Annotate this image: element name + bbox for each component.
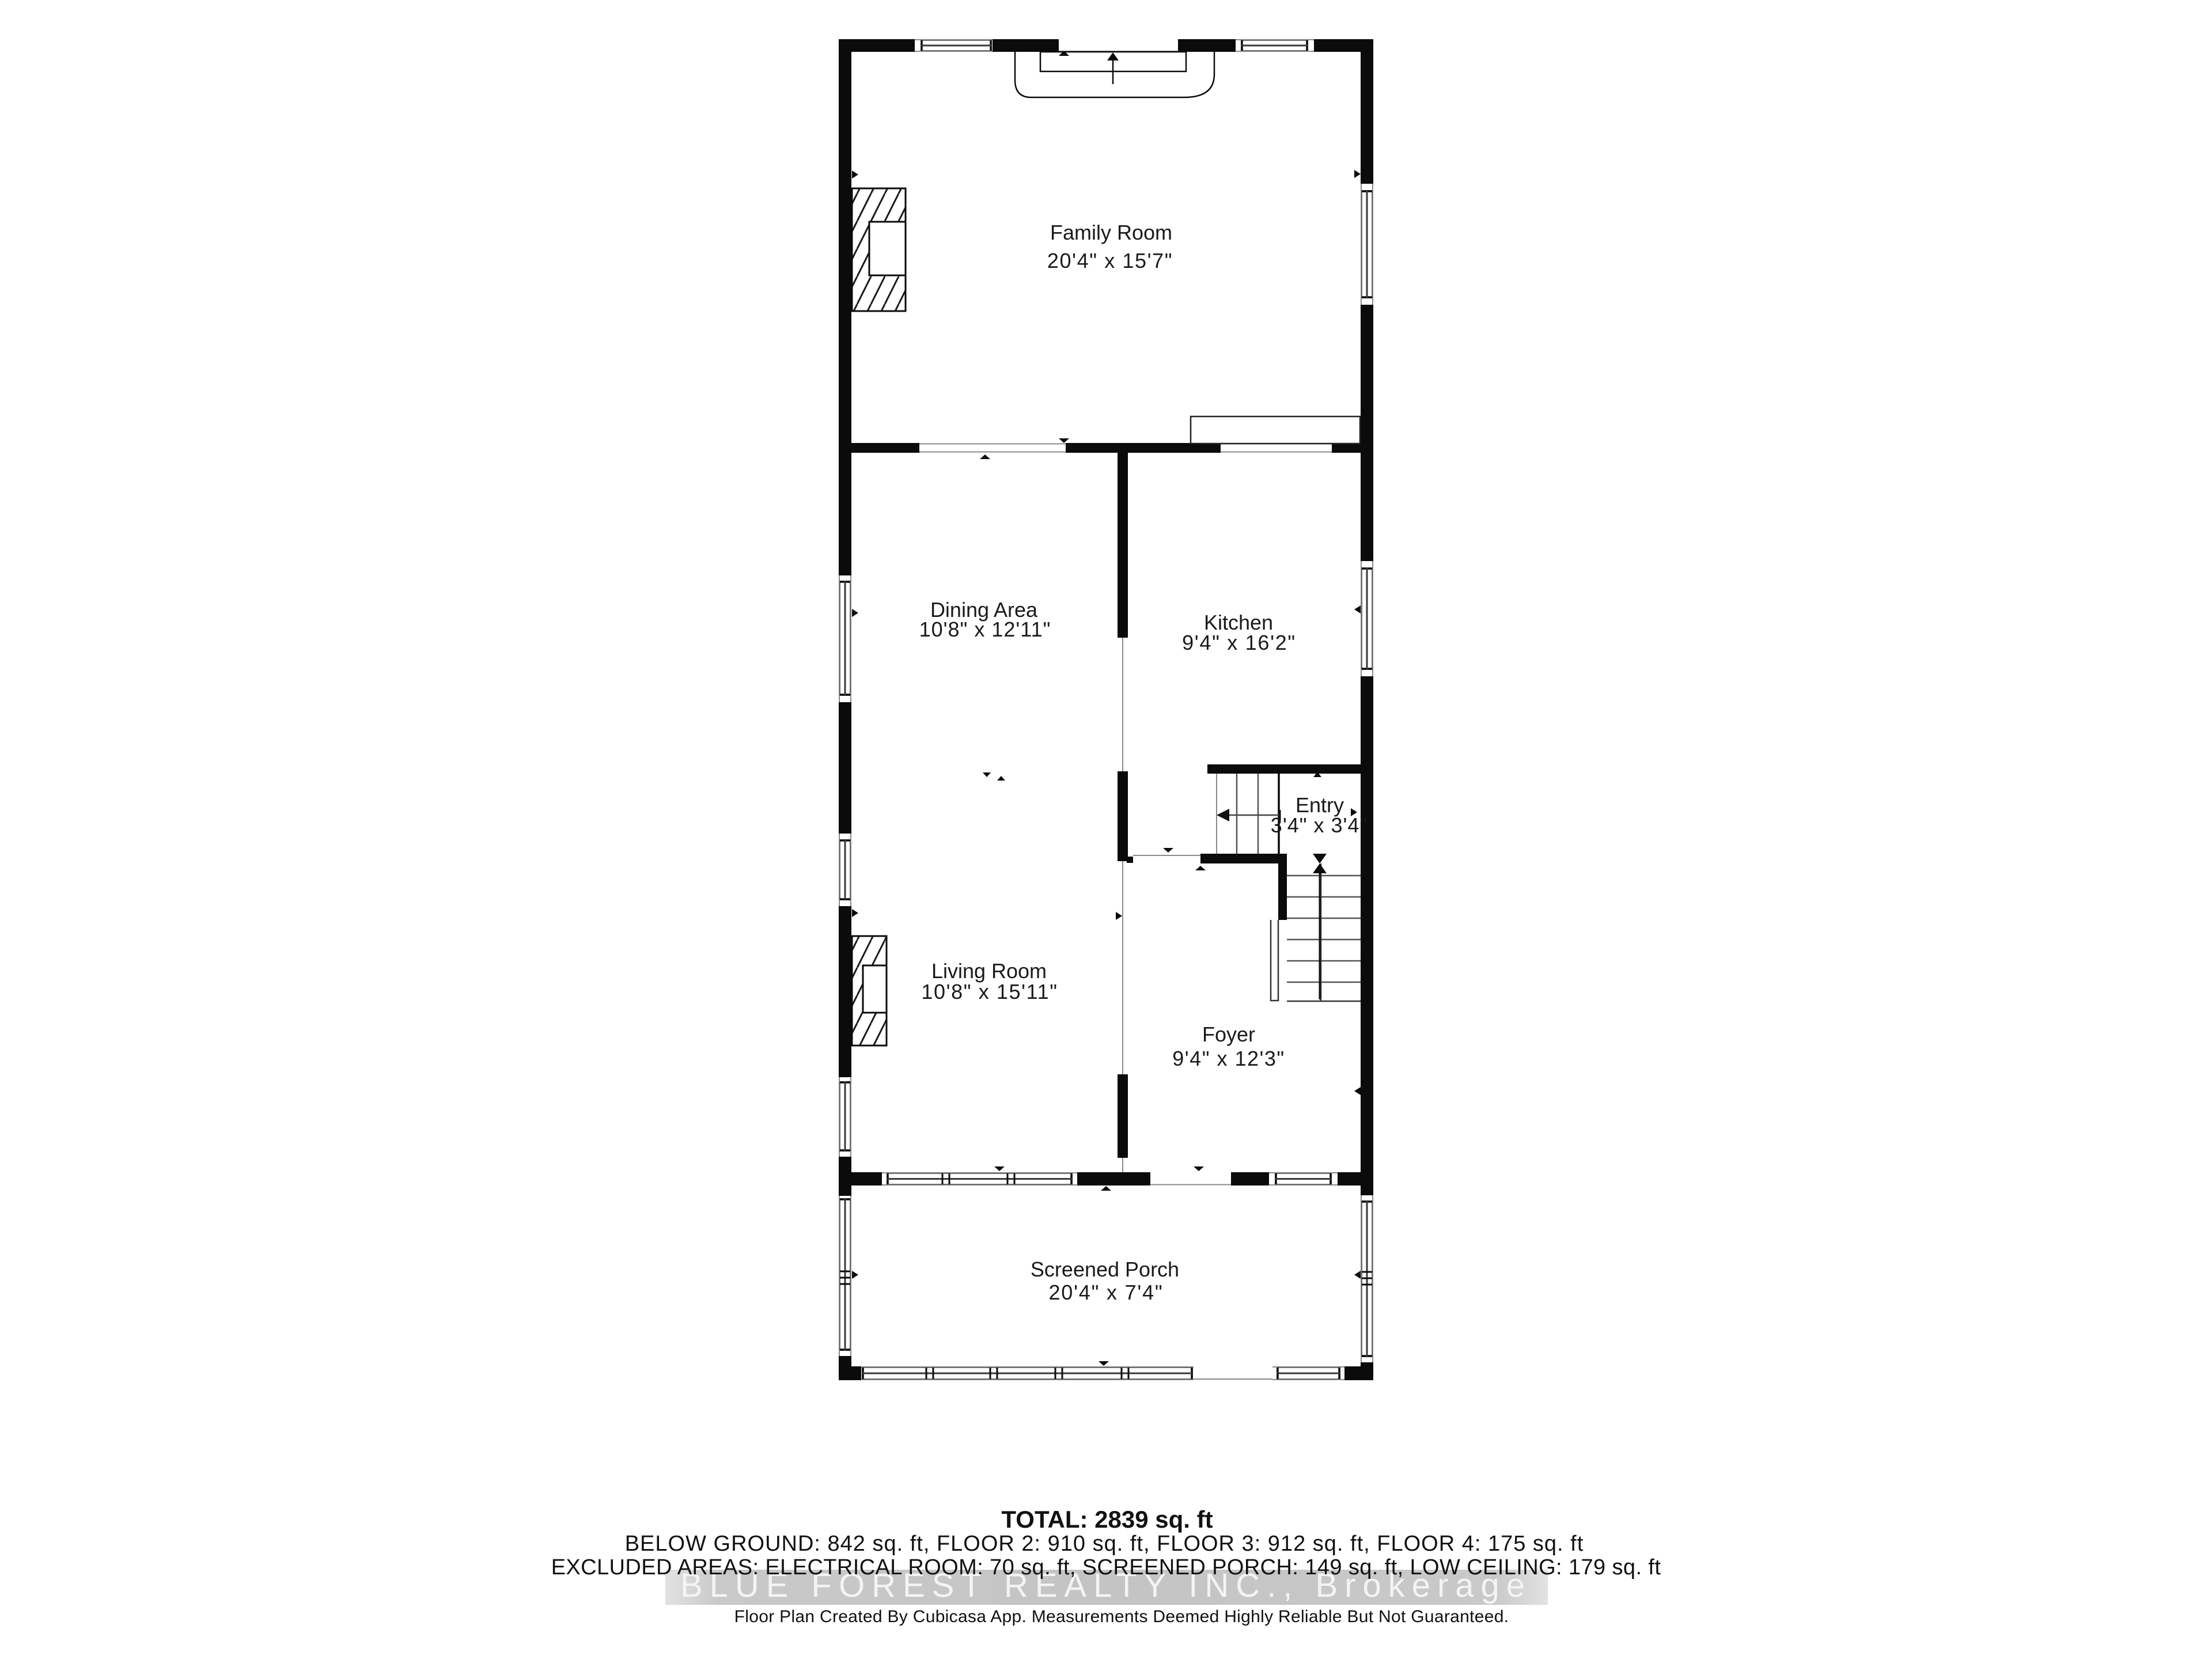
svg-text:9'4" x 12'3": 9'4" x 12'3" [1172, 1047, 1285, 1070]
svg-text:BELOW GROUND: 842 sq. ft, FLOO: BELOW GROUND: 842 sq. ft, FLOOR 2: 910 s… [625, 1532, 1584, 1556]
svg-text:Screened Porch: Screened Porch [1031, 1257, 1179, 1281]
svg-text:9'4" x 16'2": 9'4" x 16'2" [1182, 631, 1296, 654]
svg-text:TOTAL: 2839 sq. ft: TOTAL: 2839 sq. ft [1001, 1506, 1213, 1533]
svg-text:Foyer: Foyer [1202, 1022, 1255, 1046]
svg-text:20'4" x 7'4": 20'4" x 7'4" [1048, 1281, 1163, 1304]
svg-text:10'8" x 12'11": 10'8" x 12'11" [919, 618, 1051, 641]
svg-text:Living Room: Living Room [931, 959, 1047, 983]
svg-text:20'4" x 15'7": 20'4" x 15'7" [1047, 249, 1173, 272]
svg-text:Family Room: Family Room [1050, 221, 1172, 244]
svg-text:3'4" x 3'4": 3'4" x 3'4" [1271, 813, 1368, 837]
svg-text:Floor Plan Created By Cubicasa: Floor Plan Created By Cubicasa App. Meas… [734, 1607, 1509, 1626]
svg-text:10'8" x 15'11": 10'8" x 15'11" [921, 980, 1058, 1003]
svg-text:EXCLUDED AREAS: ELECTRICAL ROO: EXCLUDED AREAS: ELECTRICAL ROOM: 70 sq. … [551, 1555, 1661, 1580]
